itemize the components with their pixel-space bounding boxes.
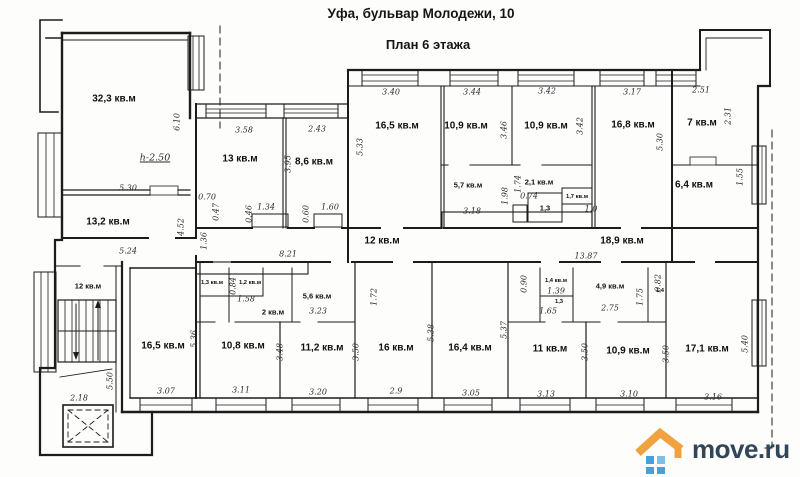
floor-plan-drawing: [0, 0, 800, 477]
floor-plan-page: Уфа, бульвар Молодежи, 10 План 6 этажа: [0, 0, 800, 477]
move-ru-logo: move.ru: [634, 424, 796, 474]
move-ru-logo-text: move.ru: [692, 434, 790, 465]
stairs-down-arrow: [73, 352, 79, 360]
move-ru-house-icon: [634, 424, 688, 474]
